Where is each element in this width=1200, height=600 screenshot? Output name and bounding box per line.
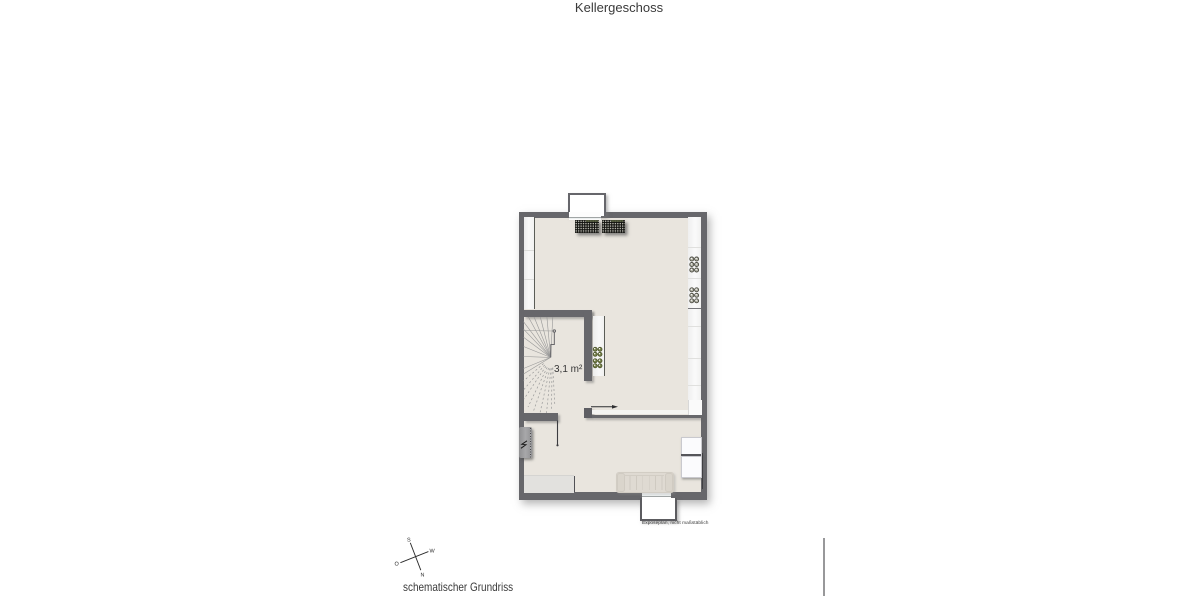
svg-text:O: O (394, 561, 399, 567)
svg-text:W: W (430, 549, 436, 555)
svg-text:S: S (407, 537, 411, 543)
svg-text:N: N (420, 573, 424, 579)
